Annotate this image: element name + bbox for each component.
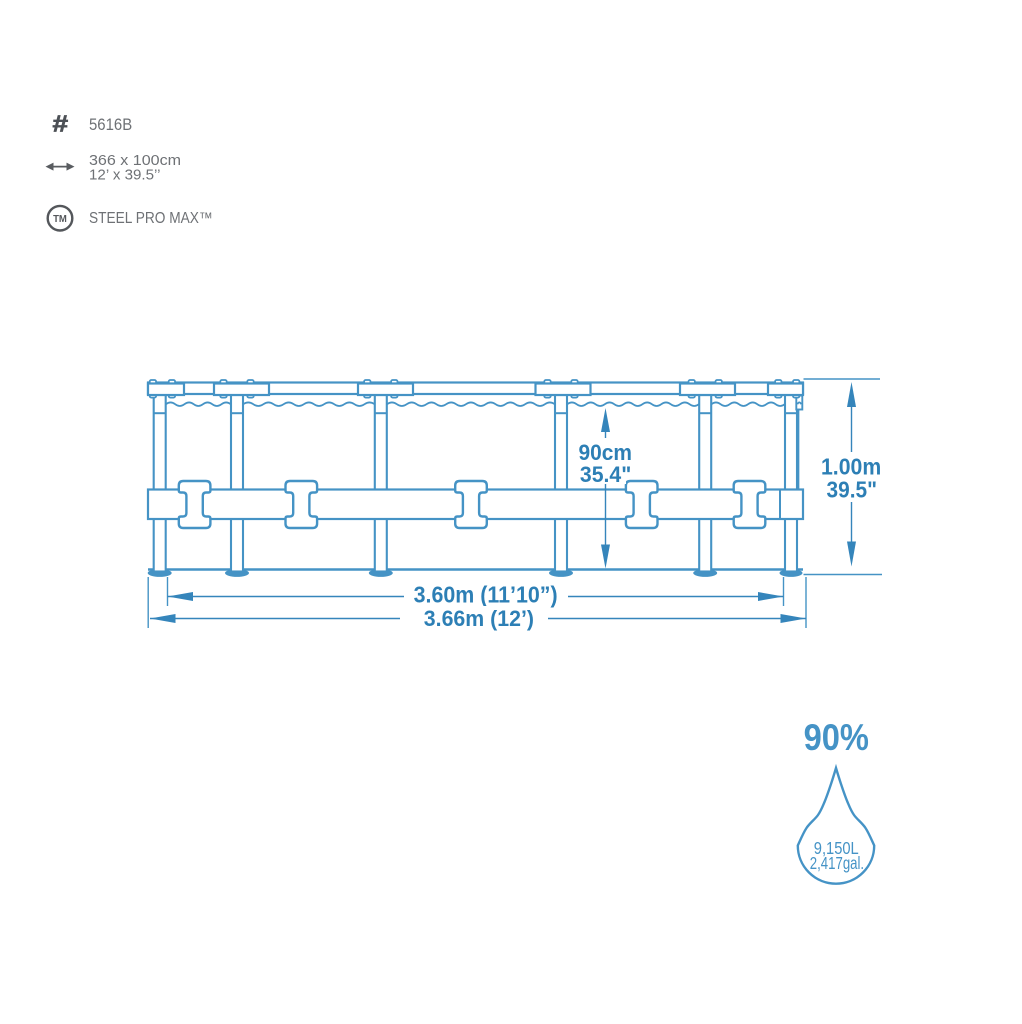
svg-text:2,417gal.: 2,417gal. bbox=[810, 853, 864, 873]
svg-text:TM: TM bbox=[53, 213, 67, 225]
svg-text:#: # bbox=[53, 112, 69, 137]
svg-text:35.4": 35.4" bbox=[580, 462, 631, 487]
svg-text:12’ x 39.5’’: 12’ x 39.5’’ bbox=[89, 167, 161, 183]
svg-text:5616B: 5616B bbox=[89, 115, 132, 134]
svg-text:3.66m (12’): 3.66m (12’) bbox=[424, 606, 534, 631]
svg-text:STEEL PRO MAX™: STEEL PRO MAX™ bbox=[89, 210, 213, 227]
svg-text:39.5": 39.5" bbox=[827, 477, 878, 503]
svg-text:3.60m (11’10”): 3.60m (11’10”) bbox=[414, 581, 558, 607]
svg-text:90%: 90% bbox=[804, 717, 869, 758]
